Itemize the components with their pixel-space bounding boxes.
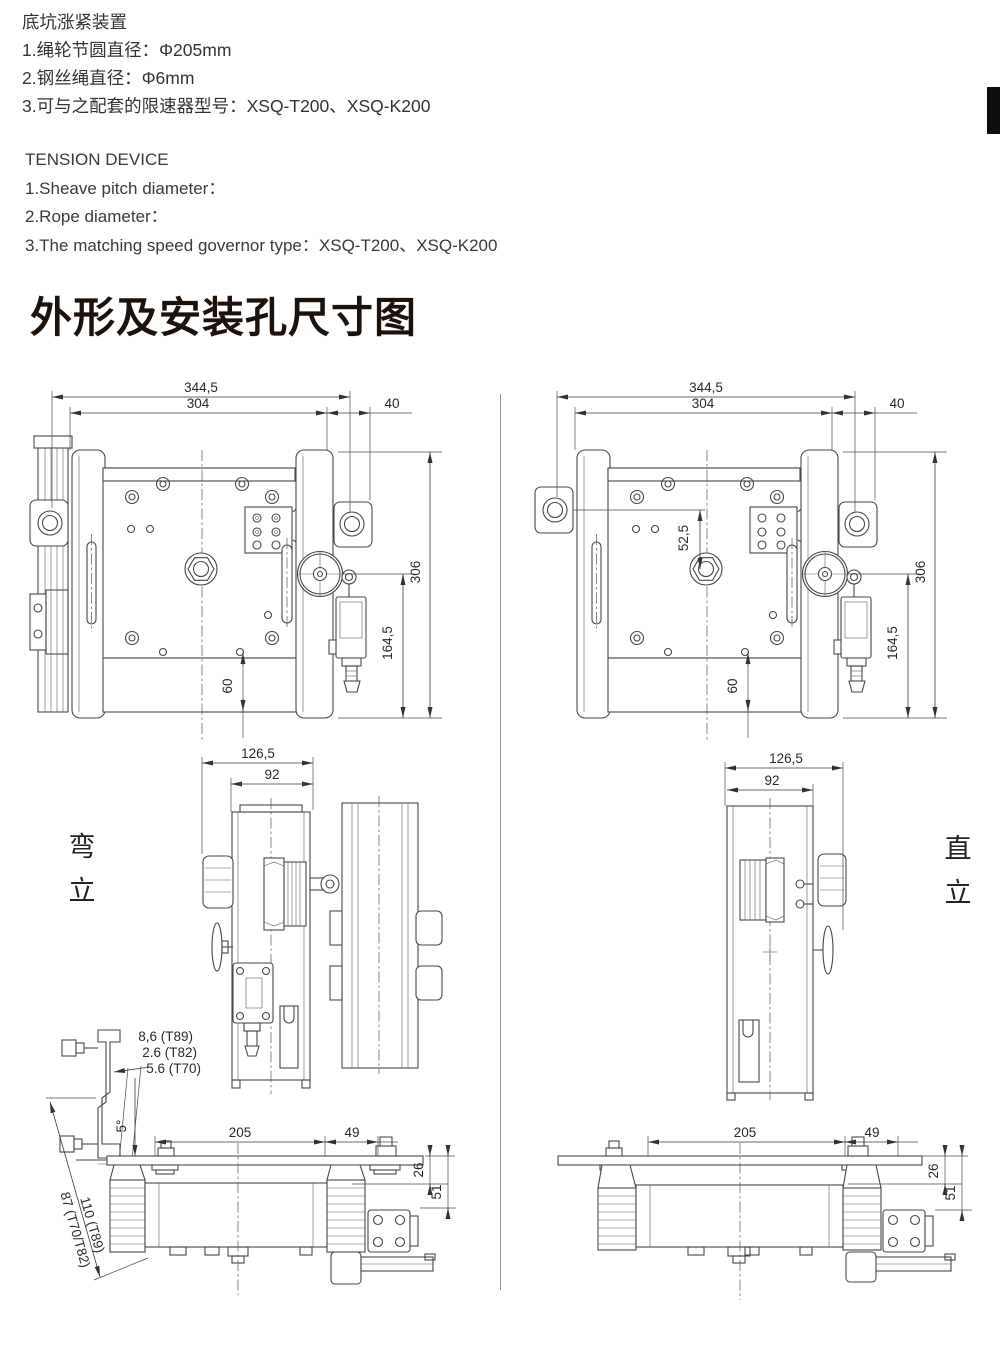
dim-body-width: 205 (229, 1125, 252, 1140)
spring-pack (264, 858, 339, 930)
main-plate (608, 450, 803, 742)
dim-ext-width: 49 (864, 1125, 879, 1140)
dim-height: 306 (408, 561, 423, 584)
en-item-1: 1.Sheave pitch diameter： (25, 175, 497, 204)
handwheel (212, 923, 233, 971)
limit-switch-box (329, 597, 366, 692)
dim-switch-height: 164,5 (380, 626, 395, 660)
dim-ext-width: 49 (344, 1125, 359, 1140)
main-plate (103, 450, 298, 742)
center-hex-bolt (185, 553, 217, 585)
en-item-2: 2.Rope diameter： (25, 203, 497, 232)
en-item-3: 3.The matching speed governor type：XSQ-T… (25, 232, 497, 261)
left-mounting-ear (30, 500, 68, 546)
front-view-upright-drawing: 344,5 304 40 52,5 306 164,5 60 (530, 375, 1000, 740)
cn-title: 底坑涨紧装置 (22, 8, 430, 36)
dim-outer-width: 344,5 (689, 380, 723, 395)
mounting-bracket-detail (60, 1030, 147, 1164)
cn-item-3: 3.可与之配套的限速器型号：XSQ-T200、XSQ-K200 (22, 92, 430, 120)
dim-body-width: 205 (734, 1125, 757, 1140)
end-cap (203, 856, 233, 908)
left-side-plate (577, 450, 610, 718)
dim-tilt-angle: 5° (114, 1120, 129, 1133)
view-label-bent-2: 立 (69, 876, 96, 906)
catalog-page: 底坑涨紧装置 1.绳轮节圆直径：Φ205mm 2.钢丝绳直径：Φ6mm 3.可与… (0, 0, 1000, 1364)
guide-rail-left (30, 436, 72, 712)
dim-offset-t89: 8,6 (T89) (138, 1029, 193, 1044)
dim-bottom-offset: 60 (725, 678, 740, 693)
dim-side-inner: 92 (764, 773, 779, 788)
sheave-wheel (803, 552, 848, 597)
section-title-calligraphy: 外形及安装孔尺寸图 (30, 284, 417, 345)
rope-pocket (739, 1020, 759, 1082)
dim-switch-height: 164,5 (885, 626, 900, 660)
dim-outer-width: 344,5 (184, 380, 218, 395)
dim-inner-width: 304 (187, 396, 210, 411)
en-title: TENSION DEVICE (25, 146, 497, 175)
end-cap (818, 854, 846, 906)
view-label-upright-1: 直 (945, 834, 972, 864)
left-mounting-ear (535, 487, 573, 533)
front-view-bent-drawing: 344,5 304 40 306 164,5 60 (30, 375, 475, 740)
dim-plate-gap: 26 (926, 1163, 941, 1178)
dim-offset-t70: 5.6 (T70) (146, 1061, 201, 1076)
dim-side-inner: 92 (264, 767, 279, 782)
bottom-view-bent-drawing: 8,6 (T89) 2.6 (T82) 5.6 (T70) 5° 110 (T8… (30, 1020, 500, 1310)
right-mounting-ear (334, 502, 372, 547)
dim-seat-gap: 51 (943, 1185, 958, 1200)
left-side-plate (72, 450, 105, 718)
dim-bottom-offset: 60 (220, 678, 235, 693)
cn-item-2: 2.钢丝绳直径：Φ6mm (22, 64, 430, 92)
dim-height: 306 (913, 561, 928, 584)
side-view-upright-drawing: 直 立 (700, 745, 1000, 1095)
tension-indicator-slot (787, 538, 797, 630)
right-mounting-ear (839, 502, 877, 547)
dim-side-offset: 40 (384, 396, 399, 411)
limit-switch-box (834, 597, 871, 692)
dim-plate-gap: 26 (411, 1162, 426, 1177)
english-spec-block: TENSION DEVICE 1.Sheave pitch diameter： … (25, 146, 497, 260)
page-edge-tab (987, 87, 1000, 134)
dim-seat-gap: 51 (429, 1184, 444, 1199)
column-divider (500, 394, 501, 1290)
tension-indicator-slot (282, 538, 292, 630)
view-label-upright-2: 立 (945, 878, 972, 908)
dim-side-outer: 126,5 (769, 751, 803, 766)
dim-side-outer: 126,5 (241, 746, 275, 761)
chinese-spec-block: 底坑涨紧装置 1.绳轮节圆直径：Φ205mm 2.钢丝绳直径：Φ6mm 3.可与… (22, 8, 430, 120)
cn-item-1: 1.绳轮节圆直径：Φ205mm (22, 36, 430, 64)
sheave-wheel (298, 552, 343, 597)
dim-hole-offset: 52,5 (676, 525, 691, 551)
bottom-view-upright-drawing: 205 49 26 51 (530, 1100, 1000, 1310)
handwheel (813, 926, 833, 974)
spring-pack (740, 858, 784, 922)
dim-inner-width: 304 (692, 396, 715, 411)
dim-side-offset: 40 (889, 396, 904, 411)
view-label-bent-1: 弯 (69, 832, 96, 862)
dim-offset-t82: 2.6 (T82) (142, 1045, 197, 1060)
center-hex-bolt (690, 553, 722, 585)
